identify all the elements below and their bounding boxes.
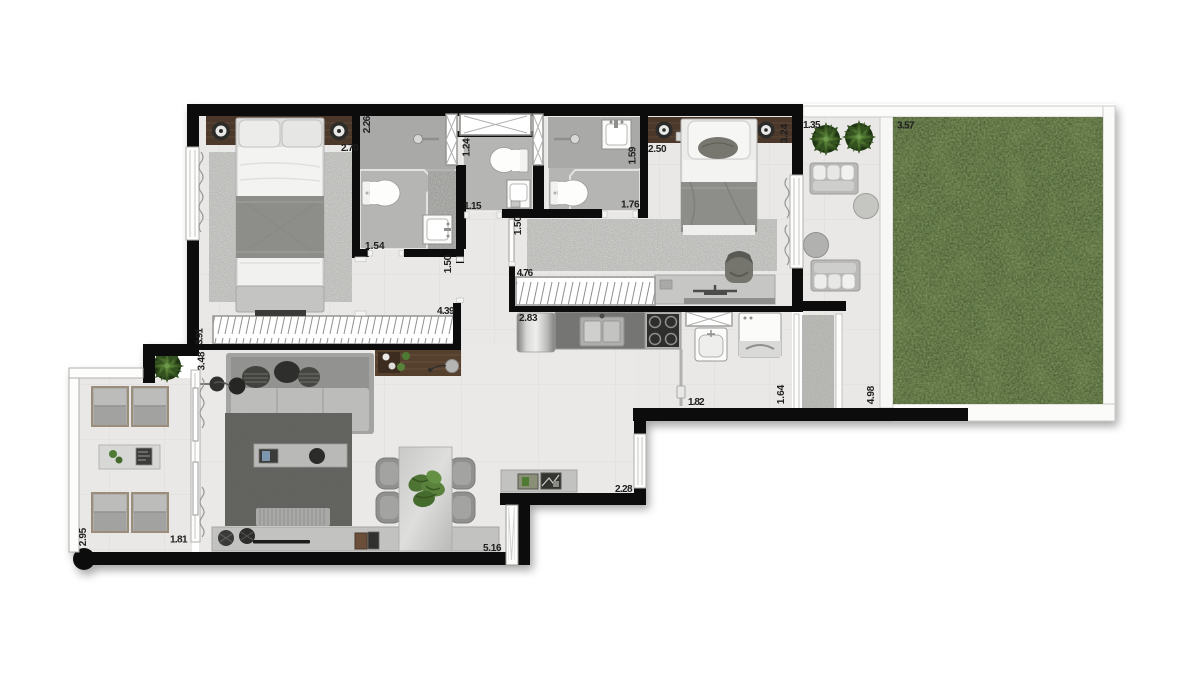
svg-text:1.50: 1.50 [443, 254, 454, 273]
svg-text:1.64: 1.64 [776, 384, 787, 404]
svg-text:2.28: 2.28 [615, 484, 633, 495]
svg-text:2.83: 2.83 [519, 313, 538, 324]
svg-text:1.15: 1.15 [464, 201, 482, 212]
svg-text:2.70: 2.70 [341, 143, 359, 154]
svg-text:1.82: 1.82 [688, 397, 705, 408]
svg-text:3.48: 3.48 [197, 351, 208, 370]
svg-text:4.98: 4.98 [866, 385, 877, 404]
svg-text:4.39: 4.39 [437, 306, 455, 317]
svg-text:2.26: 2.26 [362, 115, 373, 133]
svg-text:1.76: 1.76 [621, 200, 640, 211]
svg-text:1.24: 1.24 [462, 138, 473, 157]
svg-text:2.50: 2.50 [648, 144, 667, 155]
svg-text:1.54: 1.54 [365, 241, 385, 252]
svg-text:1.50: 1.50 [513, 216, 524, 235]
svg-text:3.57: 3.57 [897, 121, 915, 132]
svg-text:2.95: 2.95 [78, 527, 89, 546]
svg-text:4.76: 4.76 [517, 268, 534, 279]
svg-text:3.91: 3.91 [195, 328, 206, 345]
svg-text:3.24: 3.24 [780, 123, 791, 143]
svg-text:5.16: 5.16 [483, 543, 502, 554]
svg-text:1.81: 1.81 [170, 535, 188, 546]
svg-text:1.59: 1.59 [628, 146, 639, 164]
svg-text:1.35: 1.35 [803, 120, 821, 131]
